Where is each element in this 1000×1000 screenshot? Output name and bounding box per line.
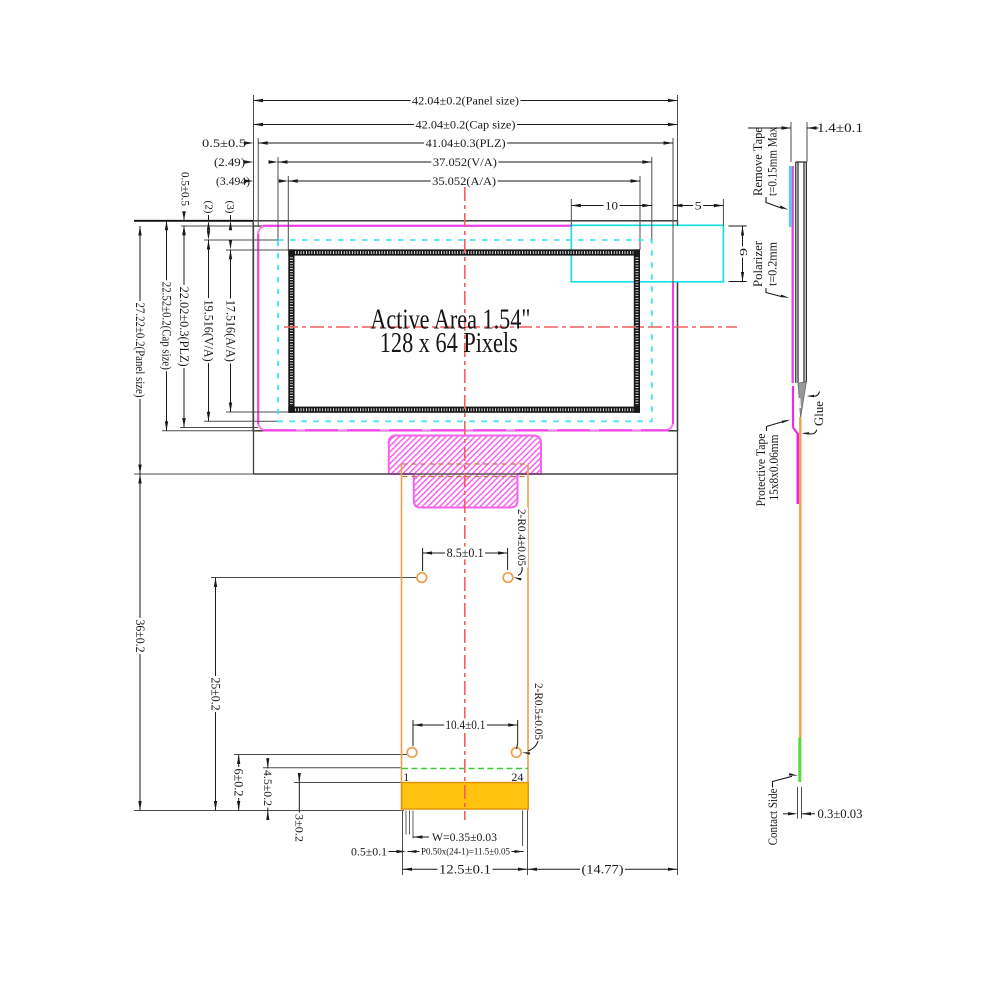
- svg-text:5: 5: [695, 199, 702, 213]
- svg-text:W=0.35±0.03: W=0.35±0.03: [432, 832, 497, 844]
- svg-text:10: 10: [605, 199, 618, 213]
- svg-text:4.5±0.2: 4.5±0.2: [261, 770, 273, 806]
- svg-text:35.052(A/A): 35.052(A/A): [432, 174, 496, 188]
- svg-text:Contact Side: Contact Side: [766, 788, 780, 845]
- svg-text:0.5±0.1: 0.5±0.1: [351, 846, 387, 858]
- svg-text:37.052(V/A): 37.052(V/A): [433, 155, 497, 169]
- svg-text:27.22±0.2(Panel size): 27.22±0.2(Panel size): [133, 303, 147, 398]
- svg-text:Protective Tape: Protective Tape: [754, 433, 768, 506]
- svg-text:12.5±0.1: 12.5±0.1: [439, 863, 491, 877]
- svg-text:15x8x0.06mm: 15x8x0.06mm: [767, 434, 781, 500]
- svg-text:128 x 64 Pixels: 128 x 64 Pixels: [380, 327, 518, 359]
- svg-text:36±0.2: 36±0.2: [133, 620, 147, 653]
- svg-text:(2): (2): [202, 201, 213, 215]
- svg-text:0.5±0.5: 0.5±0.5: [202, 136, 246, 150]
- svg-text:0.5±0.5: 0.5±0.5: [179, 172, 191, 206]
- svg-text:42.04±0.2(Panel size): 42.04±0.2(Panel size): [412, 94, 519, 108]
- svg-text:2-R0.4±0.05: 2-R0.4±0.05: [515, 509, 529, 566]
- svg-text:9: 9: [738, 247, 750, 256]
- svg-text:8.5±0.1: 8.5±0.1: [447, 546, 484, 560]
- svg-text:t=0.15mm Max: t=0.15mm Max: [765, 126, 779, 196]
- svg-text:0.3±0.03: 0.3±0.03: [818, 807, 863, 821]
- svg-text:10.4±0.1: 10.4±0.1: [445, 718, 485, 732]
- svg-text:Polarizer: Polarizer: [751, 240, 765, 287]
- svg-text:17.516(A/A): 17.516(A/A): [223, 300, 237, 362]
- svg-text:(3): (3): [224, 201, 235, 215]
- svg-text:Glue: Glue: [812, 401, 826, 426]
- svg-text:(14.77): (14.77): [582, 863, 624, 877]
- svg-text:P0.50x(24-1)=11.5±0.05: P0.50x(24-1)=11.5±0.05: [421, 847, 510, 857]
- svg-text:1.4±0.1: 1.4±0.1: [817, 121, 863, 135]
- svg-text:25±0.2: 25±0.2: [208, 678, 222, 711]
- svg-text:22.52±0.2(Cap size): 22.52±0.2(Cap size): [159, 282, 173, 370]
- svg-text:Remove Tape: Remove Tape: [751, 127, 765, 196]
- svg-text:(2.49): (2.49): [214, 155, 245, 169]
- svg-text:19.516(V/A): 19.516(V/A): [201, 300, 215, 362]
- svg-text:42.04±0.2(Cap size): 42.04±0.2(Cap size): [416, 118, 516, 132]
- svg-text:2-R0.5±0.05: 2-R0.5±0.05: [532, 683, 546, 740]
- svg-text:t=0.2mm: t=0.2mm: [765, 242, 779, 286]
- svg-text:3±0.2: 3±0.2: [292, 814, 304, 842]
- svg-text:1: 1: [403, 770, 409, 784]
- svg-text:41.04±0.3(PLZ): 41.04±0.3(PLZ): [426, 136, 506, 150]
- svg-text:6±0.2: 6±0.2: [232, 769, 246, 797]
- svg-text:24: 24: [511, 770, 523, 784]
- svg-text:22.02±0.3(PLZ): 22.02±0.3(PLZ): [177, 287, 191, 367]
